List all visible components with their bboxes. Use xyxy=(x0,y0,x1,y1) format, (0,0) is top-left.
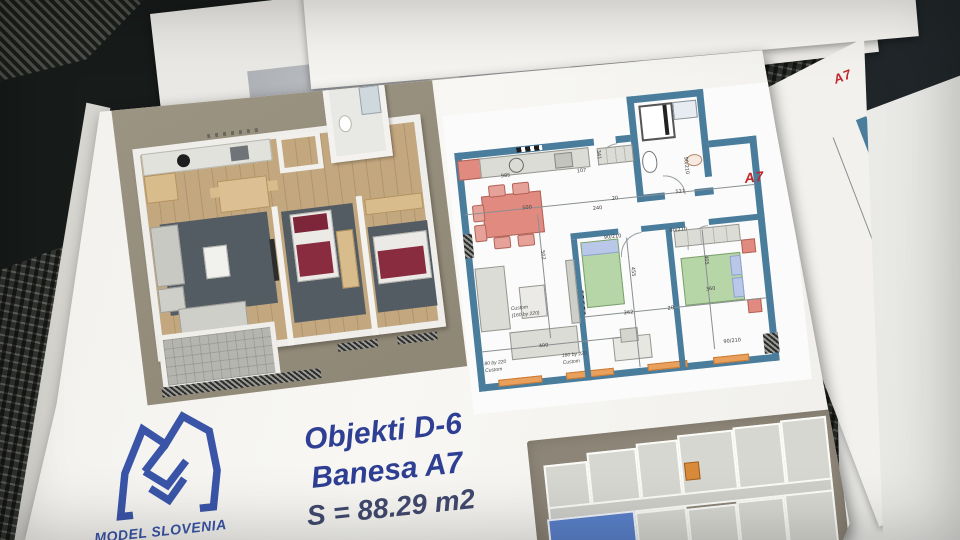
building-keyplan xyxy=(527,409,852,540)
render-bed1-pillow xyxy=(293,213,329,233)
render-coffee-table xyxy=(203,245,231,280)
render-chair xyxy=(210,187,221,198)
main-sheet-shadow-wrap: 9855002401072034150252126220400455405360… xyxy=(0,0,960,540)
render-stove xyxy=(230,145,250,161)
render-bed2-blanket xyxy=(377,246,426,279)
photo-of-floorplan-documents: A7 xyxy=(0,0,960,540)
keyplan-room xyxy=(687,504,743,540)
keyplan-room xyxy=(636,439,684,499)
plan-2d-panel: 9855002401072034150252126220400455405360… xyxy=(442,81,811,415)
keyplan-room xyxy=(780,416,832,484)
render-toilet xyxy=(338,115,353,133)
render-window-hatch xyxy=(337,339,378,352)
render-chair xyxy=(267,180,278,191)
window-label: 80 by 220Custom xyxy=(484,359,507,374)
render-shower xyxy=(358,85,381,115)
render-bed2 xyxy=(373,230,432,284)
window-labels: 80 by 220Custom 180 by 220Custom xyxy=(442,81,811,415)
window-label: 180 by 220Custom xyxy=(562,350,588,366)
unit-label-a7: A7 xyxy=(744,169,765,185)
title-block: Objekti D-6 Banesa A7 S = 88.29 m2 xyxy=(252,399,523,540)
render-sink xyxy=(176,153,190,167)
keyplan-room xyxy=(543,461,591,509)
render-cabinet xyxy=(144,172,179,204)
model-slovenia-logo-icon xyxy=(96,401,235,526)
render-window-hatch xyxy=(397,332,438,345)
keyplan-room xyxy=(784,489,841,540)
render-bed1-blanket xyxy=(296,241,334,277)
main-sheet: 9855002401072034150252126220400455405360… xyxy=(0,0,960,540)
render-3d-panel xyxy=(111,68,467,405)
render-dining-table xyxy=(217,175,271,213)
logo-block: MODEL SLOVENIA xyxy=(74,398,269,540)
keyplan-orange-marker xyxy=(684,461,701,480)
render-bathroom xyxy=(321,74,393,163)
keyplan-room xyxy=(732,423,786,490)
keyplan-room xyxy=(586,448,641,505)
render-closet xyxy=(276,130,324,173)
render-bed1 xyxy=(289,210,339,283)
keyplan-room xyxy=(736,497,790,540)
sheet-content: 9855002401072034150252126220400455405360… xyxy=(100,39,855,540)
keyplan-room xyxy=(635,507,693,540)
